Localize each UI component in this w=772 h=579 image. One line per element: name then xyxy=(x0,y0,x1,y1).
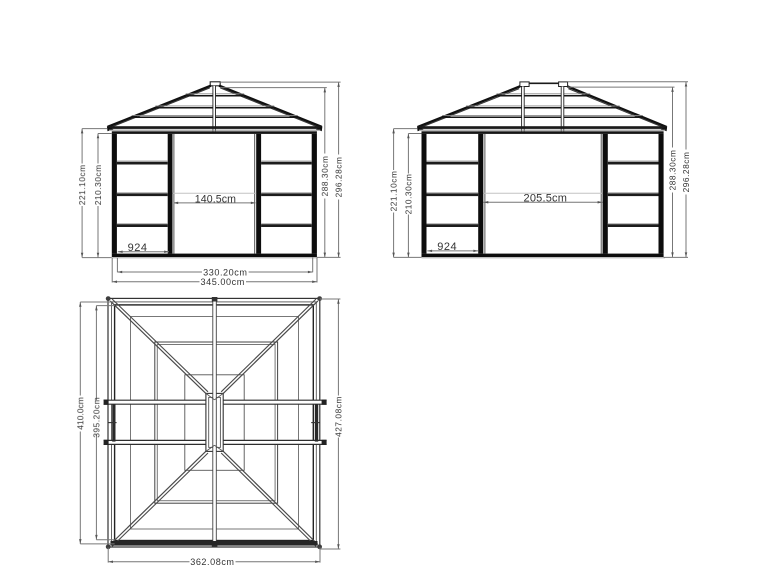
svg-text:221.10cm: 221.10cm xyxy=(389,171,399,212)
svg-text:924: 924 xyxy=(128,242,148,254)
svg-text:205.5cm: 205.5cm xyxy=(524,193,568,205)
svg-text:210.30cm: 210.30cm xyxy=(93,164,103,205)
svg-text:395.20cm: 395.20cm xyxy=(91,397,101,438)
svg-text:330.20cm: 330.20cm xyxy=(203,267,247,277)
svg-text:210.30cm: 210.30cm xyxy=(403,174,413,215)
svg-text:362.08cm: 362.08cm xyxy=(190,557,234,567)
svg-text:924: 924 xyxy=(437,241,457,253)
svg-text:221.10cm: 221.10cm xyxy=(77,164,87,205)
svg-text:296.28cm: 296.28cm xyxy=(334,157,344,198)
svg-text:288.30cm: 288.30cm xyxy=(667,150,677,191)
svg-text:296.28cm: 296.28cm xyxy=(681,152,691,193)
svg-text:345.00cm: 345.00cm xyxy=(201,277,245,287)
svg-text:410.0cm: 410.0cm xyxy=(75,397,85,430)
svg-text:427.08cm: 427.08cm xyxy=(333,396,343,437)
svg-text:140.5cm: 140.5cm xyxy=(195,193,236,205)
svg-text:288.30cm: 288.30cm xyxy=(320,156,330,197)
